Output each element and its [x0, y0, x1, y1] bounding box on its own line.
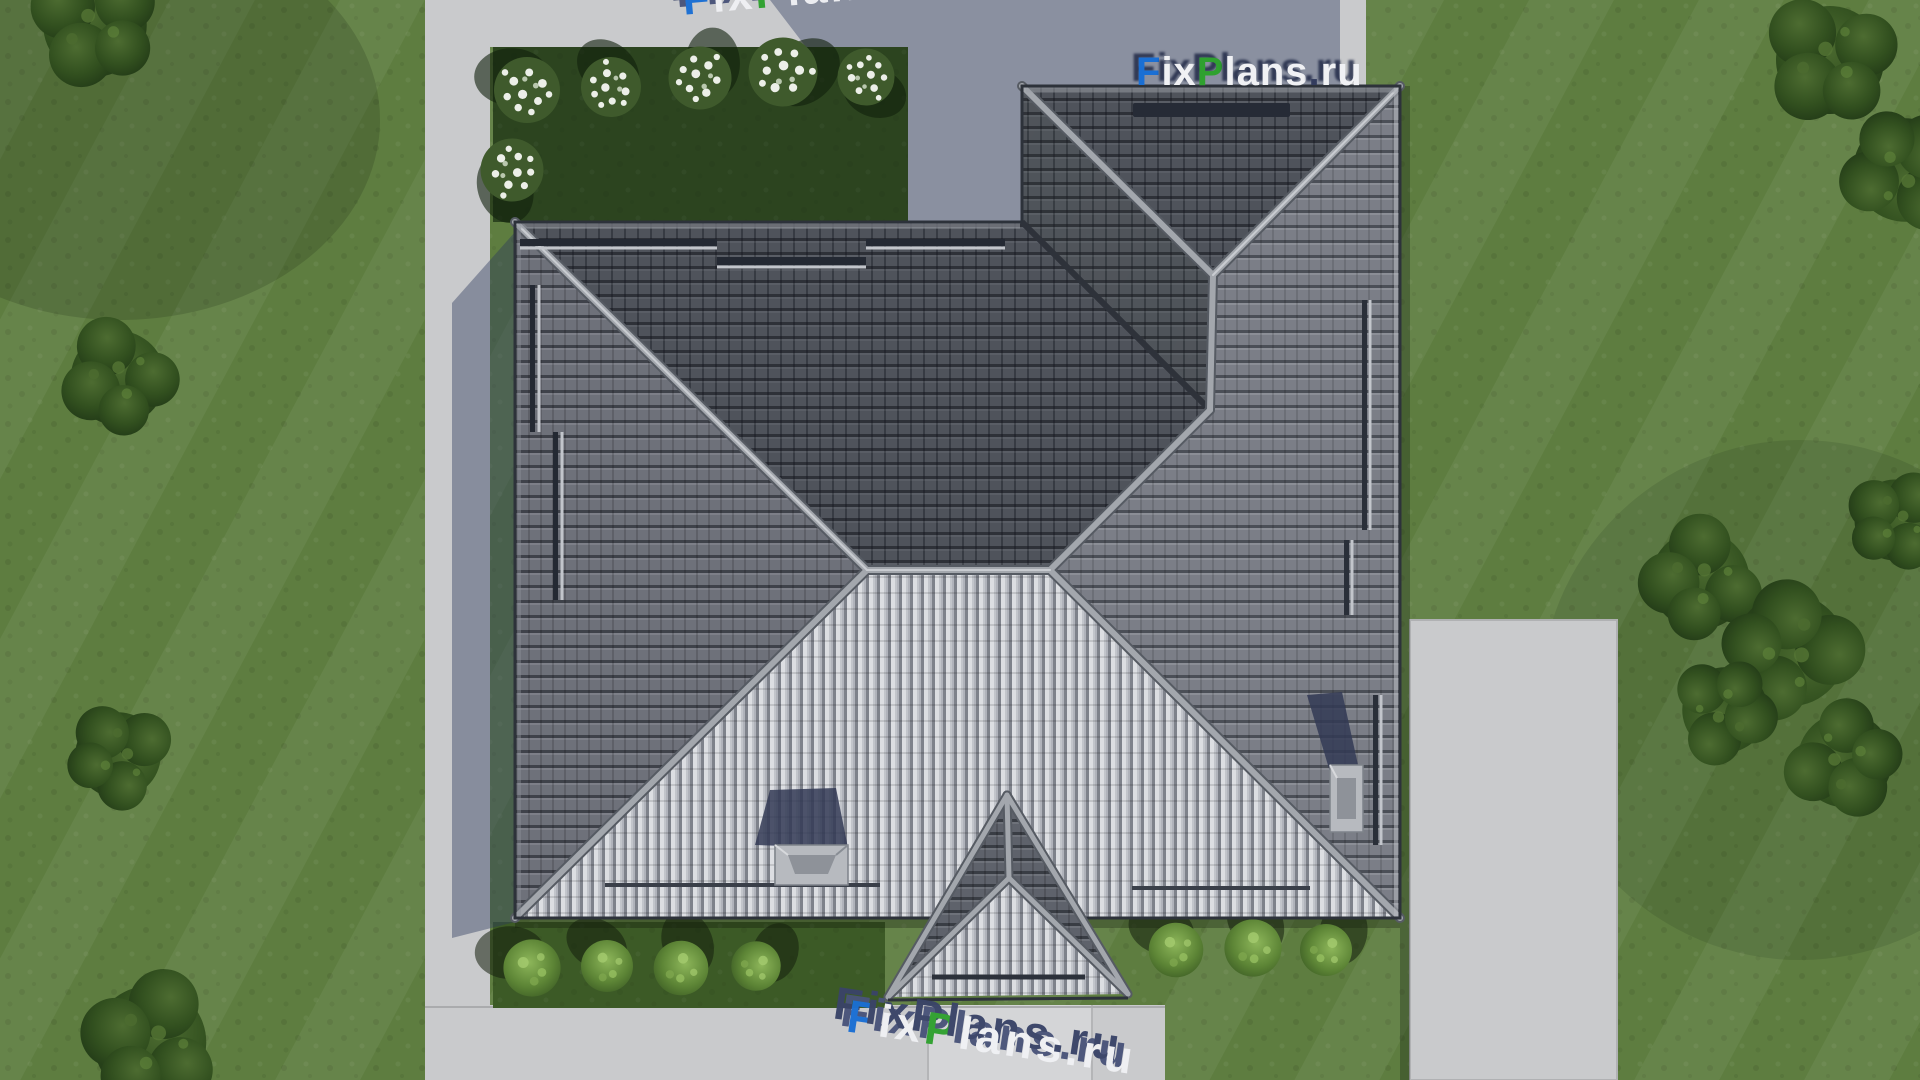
- driveway: [1410, 620, 1617, 1080]
- aerial-house-render: { "watermark": { "full": "FixPlans.ru", …: [0, 0, 1920, 1080]
- ridge-vent: [1133, 103, 1290, 117]
- porch-patio: [928, 1005, 1092, 1080]
- site-plan-canvas: [0, 0, 1920, 1080]
